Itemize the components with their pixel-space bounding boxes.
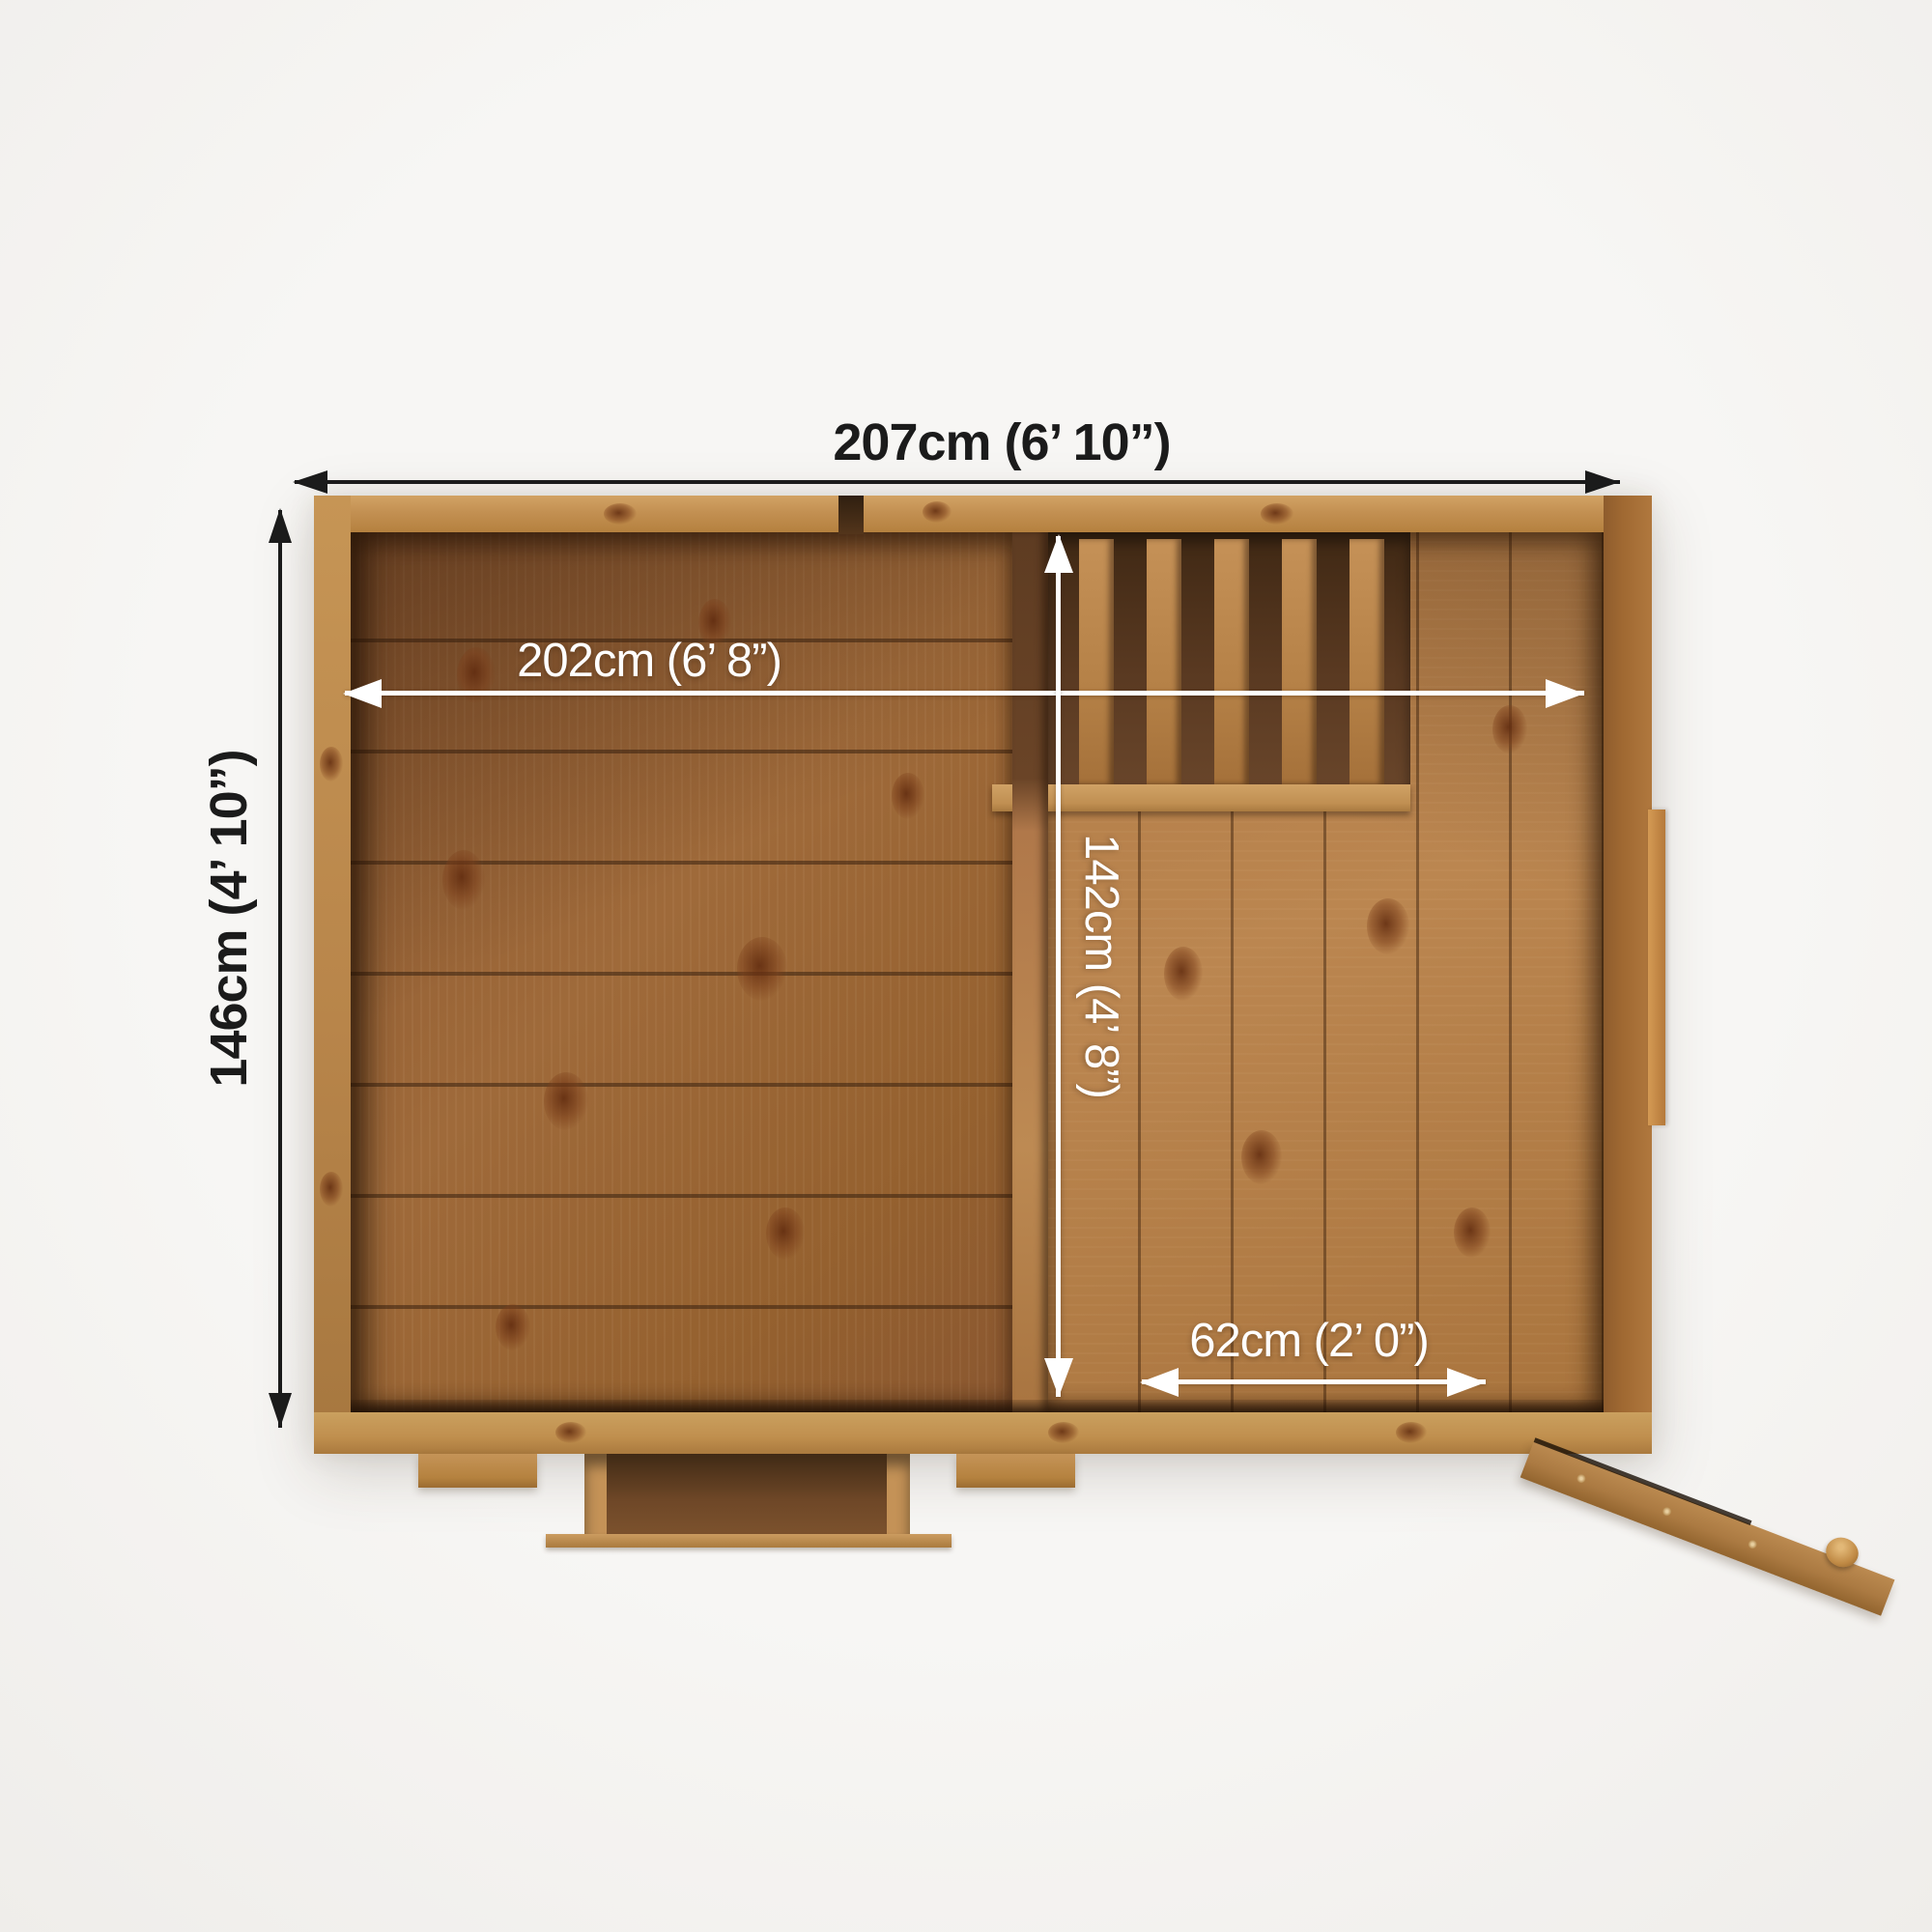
inner-width-label: 202cm (6’ 8”) — [517, 634, 781, 688]
wood-knot — [1367, 898, 1409, 954]
arrowhead-down-icon — [269, 1393, 292, 1428]
door-sill — [546, 1534, 952, 1548]
wood-knot — [496, 1304, 530, 1350]
outer-width-label: 207cm (6’ 10”) — [833, 412, 1170, 472]
wood-knot — [544, 1072, 588, 1130]
wood-knot — [892, 773, 924, 819]
arrowhead-right-icon — [1447, 1368, 1486, 1397]
wood-knot — [604, 503, 637, 525]
compartment-stud — [1282, 539, 1317, 784]
side-section-line — [1142, 1379, 1486, 1384]
arrowhead-up-icon — [269, 508, 292, 543]
door-hinge — [1576, 1473, 1587, 1485]
outer-depth-label: 146cm (4’ 10”) — [199, 750, 259, 1087]
open-door-plank — [1520, 1441, 1895, 1616]
wood-knot — [1492, 705, 1527, 753]
partition-wall — [1012, 531, 1048, 1413]
wood-knot — [1048, 1422, 1079, 1443]
side-section-label: 62cm (2’ 0”) — [1189, 1314, 1429, 1368]
door-step-left — [418, 1454, 537, 1488]
wood-knot — [555, 1422, 586, 1443]
arrowhead-right-icon — [1585, 470, 1620, 494]
left-wall — [314, 496, 351, 1454]
wood-knot — [1261, 503, 1293, 525]
wood-knot — [442, 850, 485, 910]
arrowhead-left-icon — [1140, 1368, 1179, 1397]
wood-knot — [1164, 947, 1203, 1001]
wood-knot — [320, 1172, 343, 1207]
right-wall — [1604, 496, 1652, 1454]
compartment-stud — [1214, 539, 1249, 784]
interior-bottom-shadow — [351, 1400, 1604, 1412]
floor-plan-canvas: 207cm (6’ 10”) 146cm (4’ 10”) 202cm (6’ … — [0, 0, 1932, 1932]
wood-knot — [1454, 1207, 1491, 1258]
top-wall — [314, 496, 1652, 532]
compartment-front-rail — [992, 784, 1410, 811]
arrowhead-left-icon — [293, 470, 327, 494]
arrowhead-right-icon — [1546, 679, 1584, 708]
compartment-stud — [1079, 539, 1114, 784]
wood-knot — [1241, 1130, 1282, 1184]
wood-knot — [923, 501, 952, 523]
outer-depth-line — [278, 510, 282, 1428]
bottom-wall — [314, 1412, 1652, 1454]
door-step-right — [956, 1454, 1075, 1488]
arrowhead-down-icon — [1044, 1358, 1073, 1397]
inner-depth-label: 142cm (4’ 8”) — [1074, 834, 1128, 1098]
arrowhead-up-icon — [1044, 534, 1073, 573]
right-wall-trim — [1648, 810, 1665, 1125]
door-knob — [1822, 1533, 1862, 1572]
shed-top-view — [314, 496, 1652, 1454]
wood-knot — [737, 937, 787, 1001]
door-hinge — [1747, 1539, 1758, 1550]
storage-compartment — [1048, 531, 1410, 784]
compartment-stud — [1350, 539, 1384, 784]
compartment-stud — [1147, 539, 1181, 784]
wood-knot — [320, 747, 343, 781]
wood-knot — [766, 1207, 805, 1260]
outer-width-line — [295, 480, 1620, 484]
door-hinge — [1662, 1506, 1673, 1518]
arrowhead-left-icon — [343, 679, 382, 708]
top-wall-notch — [838, 496, 864, 534]
inner-depth-line — [1056, 536, 1061, 1397]
door-recess-opening — [607, 1454, 887, 1538]
door-recess — [584, 1454, 910, 1538]
inner-width-line — [345, 691, 1584, 696]
wood-knot — [1396, 1422, 1427, 1443]
